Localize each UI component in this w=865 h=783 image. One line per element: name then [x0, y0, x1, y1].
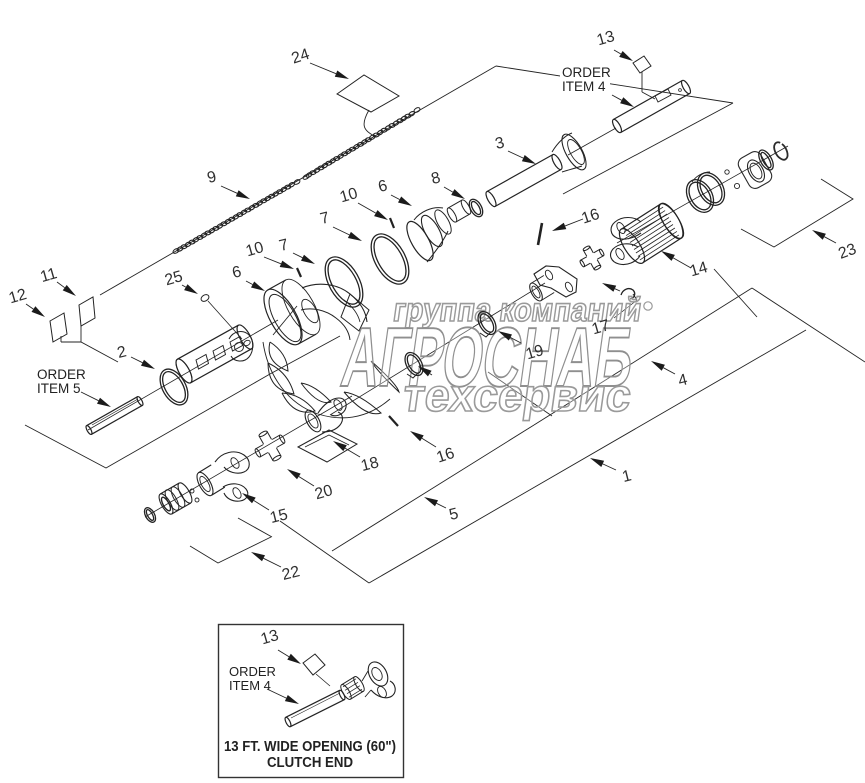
svg-text:CLUTCH END: CLUTCH END — [267, 755, 353, 771]
svg-text:ITEM 5: ITEM 5 — [37, 381, 81, 396]
svg-text:ITEM 4: ITEM 4 — [229, 678, 271, 693]
svg-text:техсервис: техсервис — [400, 369, 635, 421]
svg-text:ORDER: ORDER — [37, 367, 86, 382]
svg-text:13 FT. WIDE OPENING (60"): 13 FT. WIDE OPENING (60") — [224, 739, 396, 755]
svg-text:ITEM 4: ITEM 4 — [562, 79, 606, 94]
svg-text:ORDER: ORDER — [229, 664, 276, 679]
svg-text:ORDER: ORDER — [562, 65, 611, 80]
